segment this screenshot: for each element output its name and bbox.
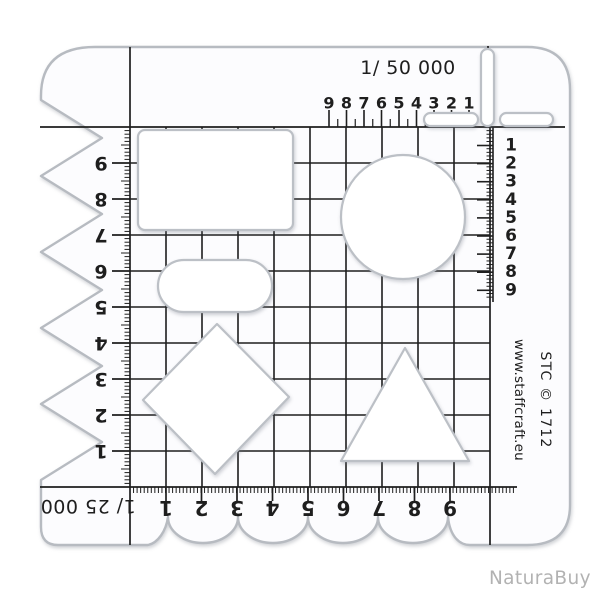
ruler-left-number: 6 (94, 260, 107, 282)
ruler-left-number: 7 (94, 224, 107, 246)
ruler-top-number: 6 (376, 94, 387, 113)
ruler-left-number: 1 (94, 440, 107, 462)
slot-horizontal-right-cutout (500, 113, 553, 126)
scale-bottom-label: 1/ 25 000 (40, 495, 136, 517)
ruler-top-number: 2 (446, 94, 457, 113)
ruler-top-number: 3 (428, 94, 439, 113)
ruler-top-number: 9 (323, 94, 334, 113)
ruler-bottom-number: 3 (230, 496, 244, 520)
ruler-bottom-number: 6 (337, 496, 351, 520)
slot-horizontal-left-cutout (424, 113, 478, 126)
ruler-right-number: 1 (505, 136, 517, 156)
ruler-right-number: 6 (505, 226, 517, 246)
ruler-left-number: 5 (94, 296, 107, 318)
ruler-left-number: 3 (94, 368, 107, 390)
brand-text: STC © 1712 (537, 352, 553, 449)
ruler-top-number: 8 (341, 94, 352, 113)
ruler-left-number: 2 (94, 404, 107, 426)
ruler-left-number: 8 (94, 188, 107, 210)
ruler-right-number: 2 (505, 154, 517, 174)
ruler-bottom-number: 1 (159, 496, 173, 520)
ruler-bottom-number: 4 (266, 496, 280, 520)
ruler-right-number: 5 (505, 208, 517, 228)
ruler-left-number: 4 (94, 332, 107, 354)
ruler-right-number: 3 (505, 172, 517, 192)
ruler-right-number: 9 (505, 280, 517, 300)
ruler-bottom-number: 8 (408, 496, 422, 520)
ruler-bottom-number: 5 (301, 496, 315, 520)
circle-cutout (341, 155, 465, 279)
ruler-top-number: 1 (463, 94, 474, 113)
ruler-top-number: 7 (358, 94, 369, 113)
ruler-bottom-number: 7 (372, 496, 386, 520)
rectangle-cutout (138, 130, 293, 230)
ruler-top-number: 4 (411, 94, 422, 113)
slot-vertical-cutout (481, 49, 494, 126)
ruler-right-number: 8 (505, 262, 517, 282)
ruler-bottom-number: 2 (195, 496, 209, 520)
ruler-right-number: 7 (505, 244, 517, 264)
watermark: NaturaBuy (489, 568, 591, 589)
rounded-rectangle-cutout (158, 260, 272, 312)
ruler-bottom-number: 9 (443, 496, 457, 520)
ruler-top-number: 5 (393, 94, 404, 113)
ruler-left-number: 9 (94, 152, 107, 174)
ruler-right-number: 4 (505, 190, 517, 210)
scale-top-label: 1/ 50 000 (360, 57, 456, 79)
template-stencil: 987654321987654321123456789123456789 1/ … (0, 0, 600, 600)
product-photo: 987654321987654321123456789123456789 1/ … (0, 0, 600, 600)
brand-url: www.staffcraft.eu (511, 339, 527, 461)
